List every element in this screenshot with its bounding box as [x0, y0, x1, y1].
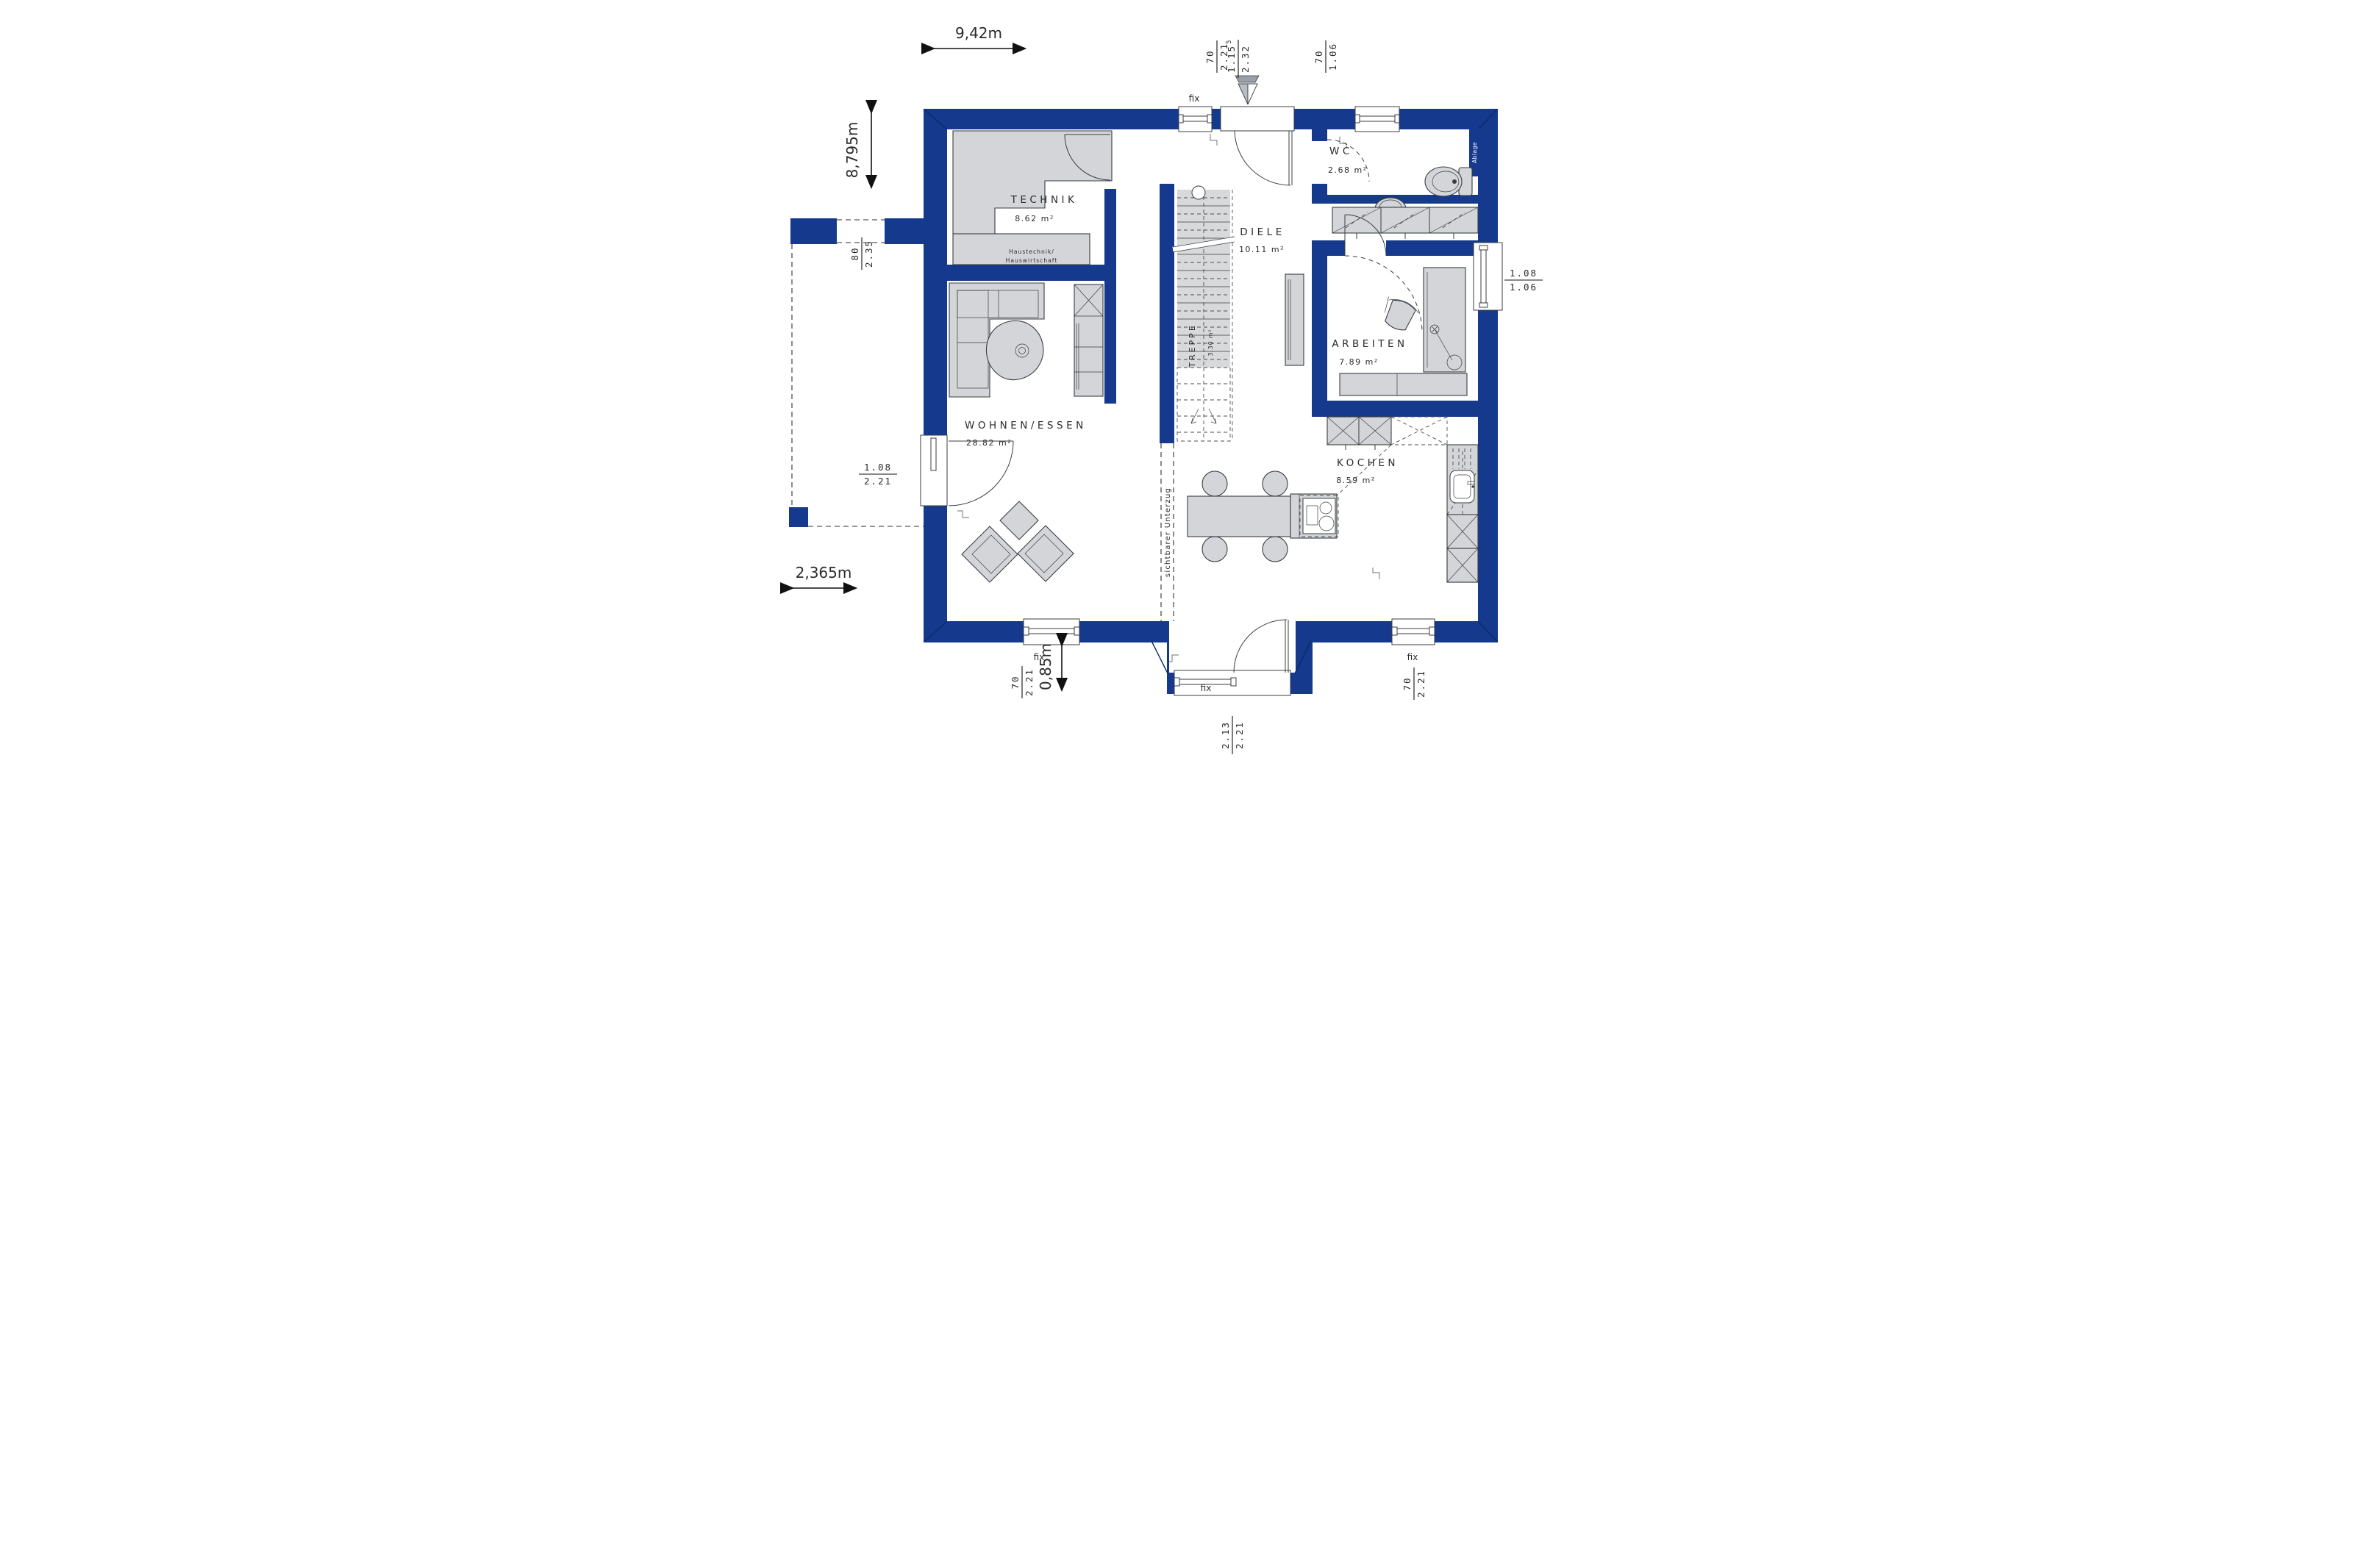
svg-text:2.21: 2.21: [864, 476, 892, 487]
svg-text:70: 70: [1204, 49, 1215, 63]
svg-text:1.06: 1.06: [1510, 282, 1538, 293]
tv-sideboard: [1074, 284, 1103, 396]
room-kochen: KOCHEN 8.59 m²: [1327, 417, 1478, 582]
dim-carport-passage: 80 2.35: [849, 237, 874, 270]
window-kitchen-fix: [1392, 619, 1435, 645]
svg-text:2.21: 2.21: [1234, 721, 1245, 749]
entrance-arrow-icon: [1235, 76, 1259, 104]
svg-text:1.08: 1.08: [1510, 268, 1538, 279]
entrance-door-swing-arc: [1235, 131, 1290, 185]
room-label-wohnen: WOHNEN/ESSEN: [965, 420, 1087, 432]
svg-text:1.06: 1.06: [1327, 43, 1338, 71]
kitchen-sink-icon: [1450, 470, 1474, 503]
dim-living-window: 70 2.21: [1010, 666, 1035, 698]
room-label-kochen: KOCHEN: [1337, 457, 1399, 469]
kitchen-tall-cabinets: [1327, 417, 1391, 450]
wall-technik-bottom: [947, 265, 1116, 281]
dim-wc-window: 70 1.06: [1313, 40, 1338, 73]
carport: [789, 218, 926, 527]
desk: [1424, 268, 1465, 372]
arbeiten-door-dashed-arc: [1345, 256, 1422, 333]
wall-wc-left-lower: [1312, 184, 1327, 195]
wall-arbeiten-top-right: [1386, 240, 1478, 256]
beam-annotation: sichtbarer Unterzug: [1161, 443, 1174, 621]
armchair-icon: [962, 526, 1018, 582]
staircase: TREPPE 3.30 m²: [1173, 186, 1235, 441]
room-area-arbeiten: 7.89 m²: [1339, 357, 1379, 367]
fix-label-living: fix: [1034, 652, 1045, 662]
stair-post-circle: [1192, 186, 1205, 199]
room-area-diele: 10.11 m²: [1239, 245, 1285, 254]
svg-text:5: 5: [1226, 40, 1233, 43]
room-diele: DIELE 10.11 m²: [1239, 226, 1304, 365]
dining-chair-icon: [1263, 471, 1288, 496]
office-chair-icon: [1378, 295, 1421, 334]
room-area-treppe: 3.30 m²: [1207, 329, 1214, 357]
coffee-table-icon: [986, 321, 1043, 379]
room-area-wc: 2.68 m²: [1328, 165, 1368, 175]
diele-sideboard: [1285, 274, 1304, 365]
entry-closet: [1332, 207, 1478, 239]
room-label-wc: WC: [1329, 146, 1353, 157]
terrace-door-south: [1174, 620, 1290, 695]
dim-kitchen-window: 70 2.21: [1402, 667, 1427, 700]
svg-text:70: 70: [1402, 676, 1413, 690]
svg-text:2.32: 2.32: [1240, 45, 1251, 73]
toilet-icon: [1425, 167, 1472, 196]
kitchen-counter: [1447, 445, 1478, 582]
svg-text:2.13: 2.13: [1220, 721, 1231, 749]
dim-left-door: 1.08 2.21: [859, 462, 897, 487]
svg-text:2.35: 2.35: [863, 240, 874, 268]
window-arbeiten: [1474, 243, 1502, 310]
dim-office-window: 1.08 1.06: [1504, 268, 1543, 293]
dining-table: [1188, 496, 1290, 537]
dim-depth-label: 8,795m: [843, 122, 861, 179]
armchair-icon: [1018, 526, 1074, 581]
room-label-technik: TECHNIK: [1010, 194, 1078, 206]
wall-arbeiten-left: [1312, 240, 1327, 401]
dim-entrance-door: 1.15 5 2.32: [1226, 40, 1251, 78]
floor-plan-canvas: TECHNIK 8.62 m² Haustechnik/ Hauswirtsch…: [588, 0, 1765, 784]
svg-text:1.08: 1.08: [864, 462, 892, 473]
room-label-diele: DIELE: [1240, 226, 1285, 238]
svg-text:80: 80: [849, 246, 860, 260]
dim-carport-label: 2,365m: [796, 564, 852, 581]
dim-recess-label: 0,85m: [1037, 643, 1054, 690]
technik-note-2: Hauswirtschaft: [1006, 257, 1058, 264]
svg-text:70: 70: [1010, 675, 1021, 689]
wall-stair-left: [1160, 184, 1174, 443]
carport-wall-stub-left: [790, 218, 837, 244]
entrance-door: [1221, 76, 1294, 185]
room-wohnen-essen: WOHNEN/ESSEN 28.82 m²: [949, 283, 1103, 582]
dining-set: [1188, 471, 1338, 562]
carport-wall-stub-right: [885, 218, 926, 244]
fix-label-kitchen: fix: [1407, 652, 1418, 662]
dining-chair-icon: [1202, 471, 1227, 496]
dim-terrace-door: 2.13 2.21: [1220, 716, 1245, 754]
room-label-treppe: TREPPE: [1188, 323, 1197, 368]
fix-label-terrace: fix: [1201, 683, 1212, 693]
kitchen-island-cooktop: [1290, 494, 1338, 538]
floor-plan-page: TECHNIK 8.62 m² Haustechnik/ Hauswirtsch…: [588, 0, 1765, 784]
carport-pillar: [789, 507, 808, 527]
room-label-arbeiten: ARBEITEN: [1332, 338, 1407, 350]
dining-chair-icon: [1202, 537, 1227, 562]
beam-label: sichtbarer Unterzug: [1164, 487, 1172, 577]
room-technik: TECHNIK 8.62 m² Haustechnik/ Hauswirtsch…: [953, 131, 1112, 265]
wall-technik-right: [1104, 189, 1116, 404]
fix-label-top: fix: [1189, 93, 1200, 104]
wall-kochen-top: [1312, 401, 1478, 417]
left-door-swing-arc: [949, 441, 1013, 506]
wall-wc-left-upper: [1312, 129, 1327, 141]
dining-chair-icon: [1263, 537, 1288, 562]
svg-text:2.21: 2.21: [1024, 668, 1035, 696]
dim-width-label: 9,42m: [955, 24, 1002, 42]
room-area-kochen: 8.59 m²: [1336, 476, 1376, 485]
side-table-icon: [1000, 501, 1038, 540]
wc-shelf-label: Ablage: [1471, 142, 1478, 163]
svg-text:2.21: 2.21: [1415, 670, 1427, 698]
stair-run-arrow: [1209, 409, 1216, 423]
window-wc: [1355, 107, 1399, 132]
window-living-fix: [1024, 619, 1079, 645]
svg-text:70: 70: [1313, 49, 1324, 63]
window-top-fix: [1179, 107, 1212, 132]
corner-miter: [1151, 641, 1168, 673]
svg-text:1.15: 1.15: [1226, 45, 1237, 73]
south-door-swing-arc: [1234, 620, 1287, 673]
room-area-wohnen: 28.82 m²: [966, 438, 1012, 448]
room-area-technik: 8.62 m²: [1015, 214, 1054, 223]
arbeiten-sideboard: [1340, 373, 1467, 395]
technik-note-1: Haustechnik/: [1009, 248, 1054, 255]
